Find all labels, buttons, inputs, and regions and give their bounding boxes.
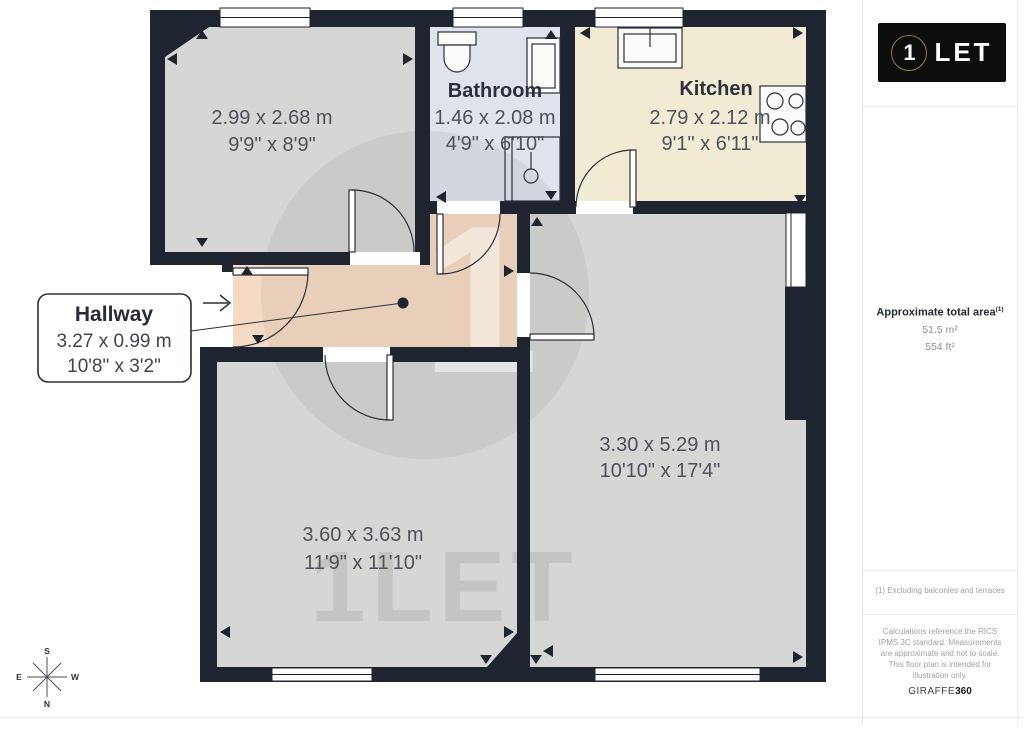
room-bottom-left-dims-ft: 11'9" x 11'10" — [304, 552, 422, 574]
total-area-title: Approximate total area(1) — [863, 306, 1017, 319]
room-bottom-left-dims-m: 3.60 x 3.63 m — [302, 524, 423, 546]
kitchen-label: Kitchen — [679, 78, 752, 100]
onelet-logo: 1 LET — [878, 23, 1006, 82]
window-bathroom — [453, 8, 523, 27]
sidebar-divider — [863, 106, 1017, 107]
compass-west: W — [71, 672, 80, 682]
giraffe360-brand: GIRAFFE360 — [863, 686, 1017, 697]
opening-front-door — [222, 272, 233, 347]
window-right-wall — [786, 213, 806, 287]
compass-east: E — [16, 672, 22, 682]
room-right-dims-m: 3.30 x 5.29 m — [599, 434, 720, 456]
bathroom-label: Bathroom — [448, 80, 542, 102]
opening-room1 — [350, 252, 420, 265]
giraffe-brand-text: GIRAFFE — [908, 686, 955, 697]
wall-bathroom-kitchen — [560, 27, 575, 214]
kitchen-sink — [618, 28, 682, 68]
window-bottom-right — [595, 668, 760, 681]
disclaimer-text: Calculations reference the RICS IPMS 3C … — [863, 626, 1017, 681]
hallway-label: Hallway — [75, 303, 154, 326]
logo-word: LET — [934, 37, 992, 68]
window-bottom-left — [272, 668, 372, 681]
logo-circle-digit: 1 — [891, 35, 927, 71]
total-area-imperial: 554 ft² — [863, 341, 1017, 353]
giraffe-brand-suffix: 360 — [955, 686, 972, 697]
sidebar-panel: 1 LET Approximate total area(1) 51.5 m² … — [863, 0, 1018, 725]
hallway-dims-m: 3.27 x 0.99 m — [56, 331, 171, 352]
wall-room1-bathroom — [415, 27, 430, 265]
sidebar-divider — [863, 570, 1017, 571]
compass: S N E W — [16, 646, 80, 709]
total-area-title-text: Approximate total area — [876, 307, 995, 319]
page-bottom-divider — [0, 717, 1024, 718]
sidebar-divider — [863, 614, 1017, 615]
kitchen-dims-m: 2.79 x 2.12 m — [649, 107, 770, 129]
window-kitchen — [595, 8, 683, 27]
opening-bathroom — [437, 201, 500, 214]
room-right-dims-ft: 10'10" x 17'4" — [600, 460, 721, 482]
hallway-dims-ft: 10'8" x 3'2" — [67, 356, 161, 377]
room-top-left-dims-m: 2.99 x 2.68 m — [211, 107, 332, 129]
compass-south: S — [44, 646, 50, 656]
sidebar: 1 LET Approximate total area(1) 51.5 m² … — [862, 0, 1024, 725]
opening-room2 — [323, 347, 390, 362]
window-top-left — [220, 8, 310, 27]
total-area-metric: 51.5 m² — [863, 324, 1017, 336]
callout-anchor-dot — [398, 298, 409, 309]
total-area-block: Approximate total area(1) 51.5 m² 554 ft… — [863, 306, 1017, 353]
bathroom-dims-m: 1.46 x 2.08 m — [434, 107, 555, 129]
wall-room2-room3 — [517, 347, 530, 682]
opening-kitchen — [576, 201, 633, 214]
opening-room-right — [517, 273, 530, 337]
room-top-left-dims-ft: 9'9" x 8'9" — [228, 134, 315, 156]
area-footnote: (1) Excluding balconies and terraces — [863, 586, 1017, 595]
bathroom-dims-ft: 4'9" x 6'10" — [446, 133, 545, 155]
wall-entrance-jamb — [222, 265, 233, 272]
compass-star-icon — [27, 657, 67, 697]
watermark-text: 1LET — [310, 531, 578, 643]
total-area-footnote-marker: (1) — [996, 306, 1004, 313]
wall-left — [150, 10, 165, 265]
kitchen-dims-ft: 9'1" x 6'11" — [661, 133, 758, 155]
compass-north: N — [44, 699, 50, 709]
wall-chimney-breast — [785, 287, 826, 420]
wall-room2-left — [200, 347, 217, 682]
